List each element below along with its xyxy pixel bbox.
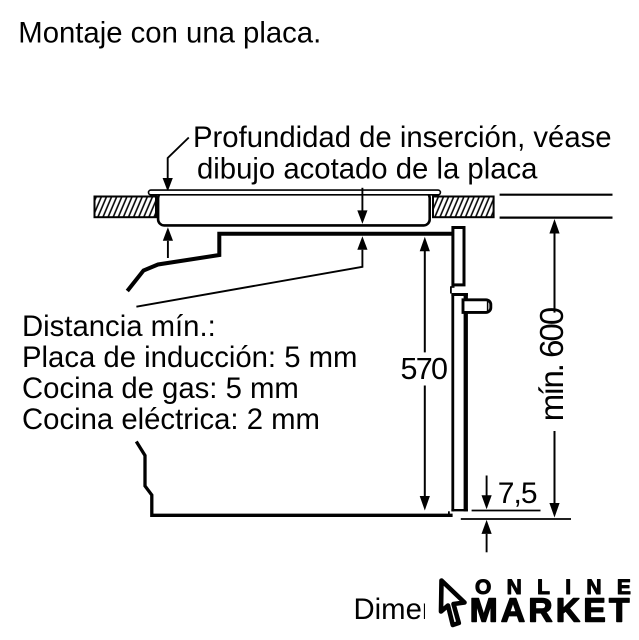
svg-text:dibujo acotado de la placa: dibujo acotado de la placa (197, 153, 538, 186)
svg-text:Montaje con una placa.: Montaje con una placa. (18, 17, 321, 50)
svg-text:mín. 600: mín. 600 (533, 307, 570, 421)
svg-text:Cocina eléctrica: 2 mm: Cocina eléctrica: 2 mm (22, 403, 320, 436)
svg-text:Cocina de gas: 5 mm: Cocina de gas: 5 mm (22, 372, 299, 405)
svg-text:7,5: 7,5 (498, 477, 537, 510)
svg-text:Distancia mín.:: Distancia mín.: (22, 310, 216, 343)
svg-text:MARKET: MARKET (470, 593, 633, 630)
svg-text:Profundidad de inserción, véas: Profundidad de inserción, véase (193, 121, 612, 154)
svg-text:Placa de inducción: 5 mm: Placa de inducción: 5 mm (22, 341, 357, 374)
svg-text:570: 570 (401, 352, 448, 386)
